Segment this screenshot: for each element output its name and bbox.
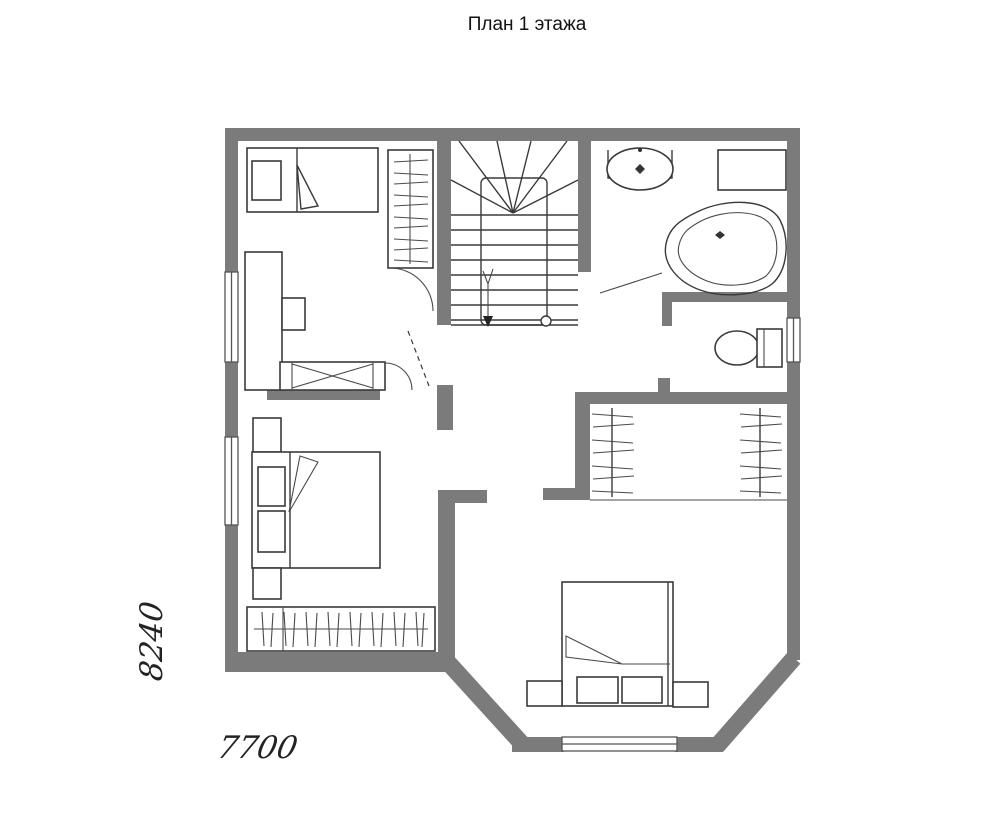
- bedroom-bay: [527, 582, 708, 707]
- exterior-walls: [225, 128, 800, 752]
- nightstand-bay-left: [527, 681, 562, 706]
- wall-left-upper: [225, 141, 238, 272]
- wall-hall-tee: [437, 385, 453, 430]
- desk-chair: [282, 298, 305, 330]
- stair-treads: [451, 215, 578, 325]
- interior-walls: [267, 141, 788, 658]
- wardrobe-door-arc: [390, 268, 433, 311]
- staircase: [451, 141, 578, 327]
- pillow: [622, 677, 662, 703]
- bay-window: [562, 737, 677, 751]
- room-nursery: [245, 148, 433, 390]
- wall-bay-bottom-left: [512, 737, 564, 752]
- wall-right-lower: [787, 362, 800, 660]
- toilet-room: [715, 329, 782, 367]
- pillow: [577, 677, 618, 703]
- page-title: План 1 этажа: [468, 14, 587, 35]
- floor-plan-page: План 1 этажа 8240 7700: [0, 0, 1000, 821]
- wall-stairs-right: [578, 141, 591, 272]
- bathroom-door-leaf: [600, 273, 662, 293]
- nursery-door-leaf: [408, 331, 429, 386]
- nightstand-bay-right: [673, 682, 708, 707]
- clothes-rail-right: [740, 408, 782, 497]
- bath-cabinet: [718, 150, 786, 190]
- double-bed-left: [252, 452, 380, 568]
- corner-bathtub: [665, 202, 786, 294]
- wall-dressing-stub: [543, 488, 577, 500]
- wall-bath-toilet-divider: [662, 292, 788, 302]
- nightstand-top: [253, 418, 281, 452]
- wall-left-lower: [225, 525, 238, 672]
- dressing-room: [592, 408, 782, 497]
- wall-toilet-door-stub-bottom: [658, 378, 670, 394]
- wall-bay-chamfer-left: [444, 658, 524, 746]
- wall-bottom-left: [225, 652, 450, 672]
- sofa-bed: [280, 362, 385, 390]
- wall-bedroom-right-arm: [438, 490, 487, 503]
- wardrobe-bedroom: [247, 607, 435, 651]
- clothes-rail-left: [592, 408, 634, 497]
- wardrobe-nursery: [388, 150, 433, 268]
- wall-top: [225, 128, 800, 141]
- wall-left-middle: [225, 362, 238, 437]
- pillow: [258, 467, 285, 506]
- stair-newel-post: [541, 316, 551, 326]
- window-right-toilet: [787, 318, 800, 362]
- wall-stairs-left: [437, 141, 451, 325]
- dimension-horizontal-label: 7700: [214, 730, 300, 766]
- wall-right-upper: [787, 141, 800, 318]
- pillow: [258, 511, 285, 552]
- toilet: [715, 329, 782, 367]
- bedroom-left: [247, 418, 435, 651]
- bathroom: [600, 148, 786, 295]
- wall-bedroom-right: [438, 490, 455, 658]
- window-left-lower: [225, 437, 238, 525]
- washbasin: [607, 148, 673, 190]
- nursery-door-arc: [385, 363, 412, 390]
- wall-bay-chamfer-right: [717, 658, 794, 746]
- window-left-upper: [225, 272, 238, 362]
- wall-dressing-top: [575, 392, 788, 404]
- nightstand-bottom: [253, 568, 281, 599]
- wall-dressing-left: [575, 404, 590, 500]
- stair-direction-arrow: [483, 269, 493, 327]
- wall-toilet-door-stub-top: [662, 302, 672, 326]
- single-bed: [247, 148, 378, 212]
- dimension-vertical-label: 8240: [134, 599, 170, 683]
- double-bed-bay: [562, 582, 673, 706]
- stair-winder-fan: [451, 141, 578, 213]
